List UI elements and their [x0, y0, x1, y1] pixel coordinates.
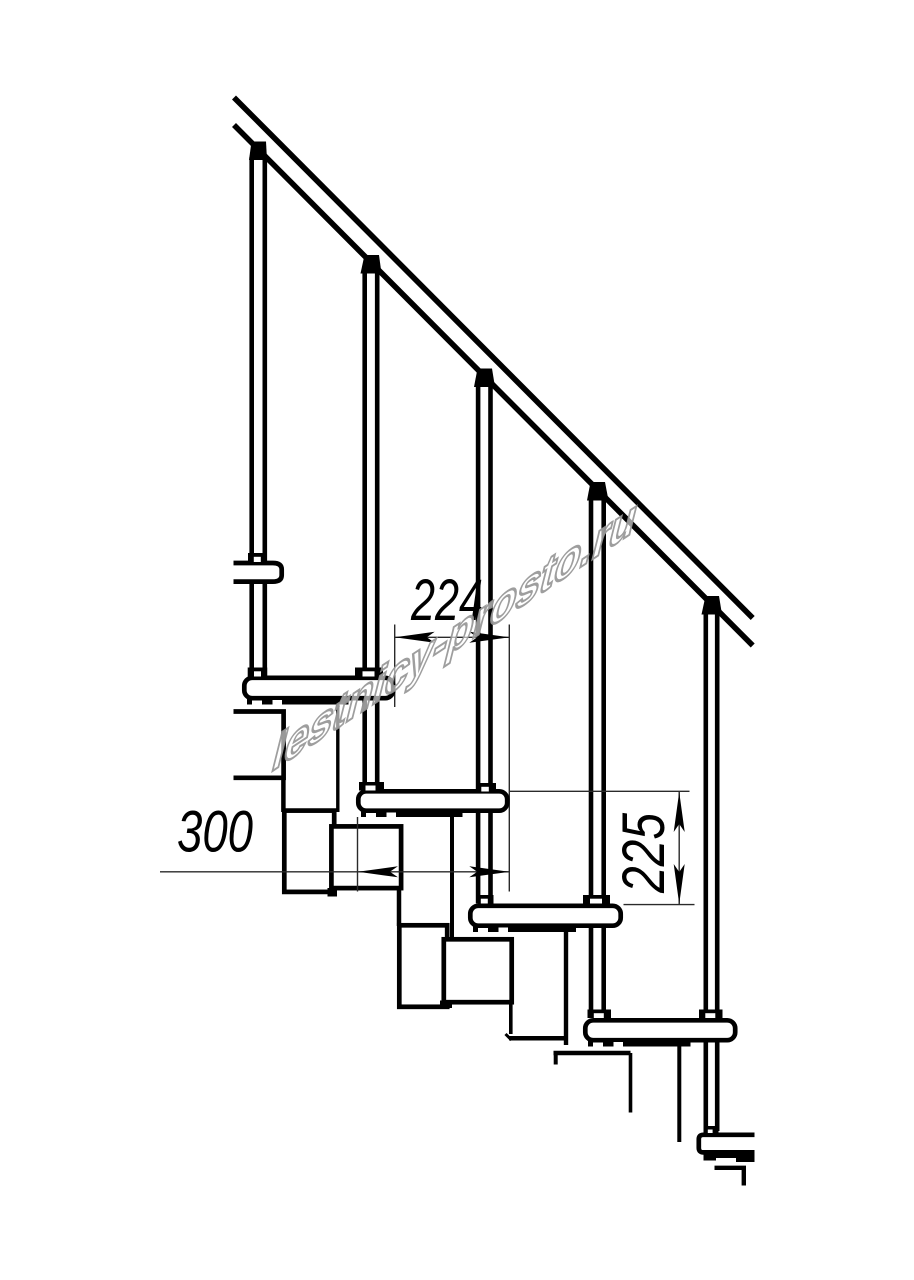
svg-text:300: 300 — [177, 800, 253, 865]
svg-text:225: 225 — [610, 812, 677, 893]
